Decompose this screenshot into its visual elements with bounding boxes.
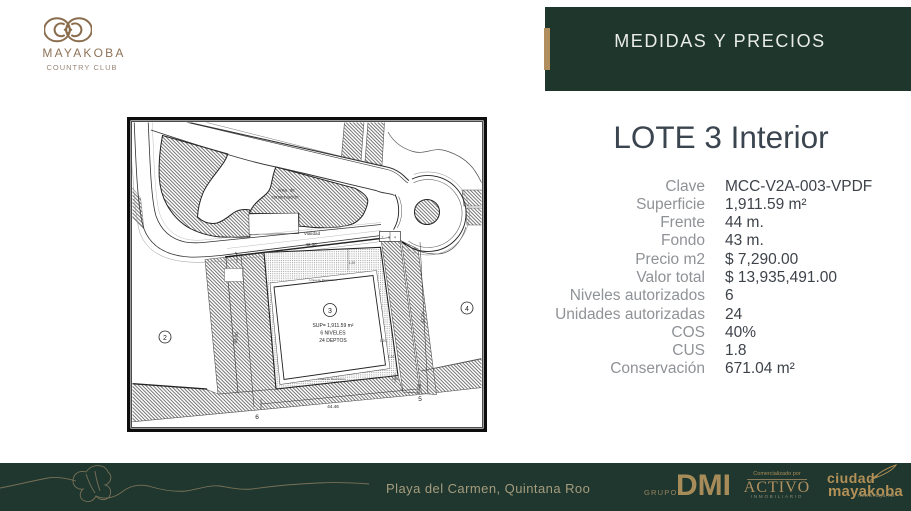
svg-text:2: 2 bbox=[382, 236, 384, 240]
svg-text:SUP= 1,911.59 m²: SUP= 1,911.59 m² bbox=[313, 323, 354, 329]
svg-text:1.20: 1.20 bbox=[349, 261, 355, 265]
svg-text:42.77: 42.77 bbox=[420, 312, 426, 324]
svg-text:Vialidad: Vialidad bbox=[304, 231, 321, 236]
svg-text:Linea de Restriccion: Linea de Restriccion bbox=[309, 278, 337, 282]
svg-text:4: 4 bbox=[465, 306, 469, 313]
svg-text:1.50: 1.50 bbox=[392, 377, 398, 381]
svg-text:42.30: 42.30 bbox=[306, 242, 318, 247]
svg-text:4: 4 bbox=[394, 236, 396, 240]
svg-text:43.00: 43.00 bbox=[233, 332, 239, 344]
svg-text:6 NIVELES: 6 NIVELES bbox=[320, 331, 346, 337]
svg-text:5: 5 bbox=[418, 396, 422, 403]
svg-text:44.46: 44.46 bbox=[327, 404, 339, 409]
svg-text:6: 6 bbox=[255, 414, 259, 421]
svg-text:2: 2 bbox=[163, 335, 167, 342]
svg-text:24 DEPTOS: 24 DEPTOS bbox=[319, 338, 347, 344]
svg-text:1.20: 1.20 bbox=[388, 355, 394, 359]
svg-text:conservación: conservación bbox=[271, 195, 299, 200]
svg-text:Área de: Área de bbox=[277, 187, 295, 193]
svg-text:1: 1 bbox=[235, 252, 238, 258]
svg-text:Linea de Restriccion: Linea de Restriccion bbox=[318, 377, 346, 381]
svg-text:1.20: 1.20 bbox=[380, 339, 386, 343]
svg-text:3: 3 bbox=[328, 308, 332, 315]
